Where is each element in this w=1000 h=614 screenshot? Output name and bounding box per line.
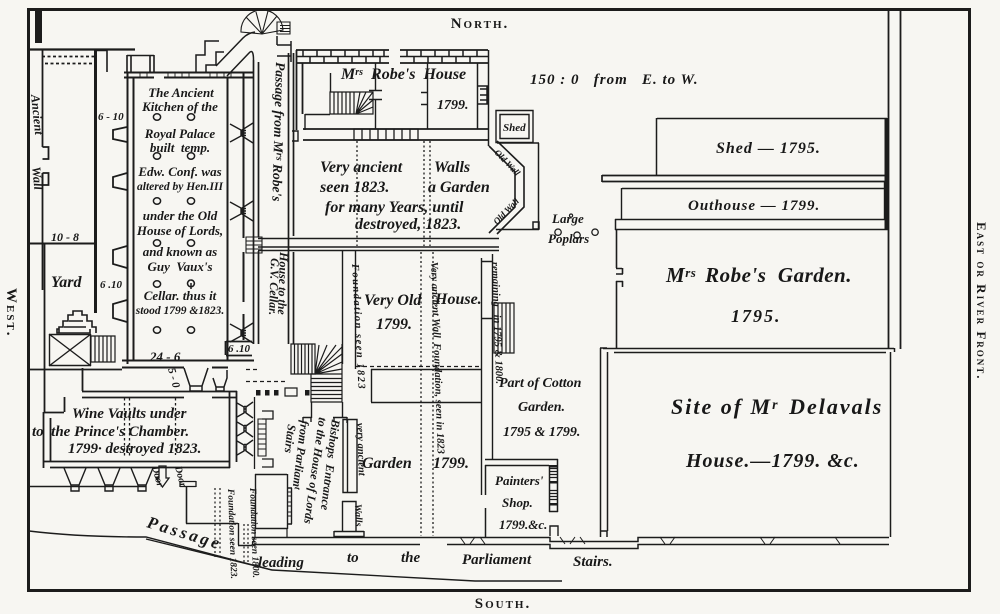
svg-text:seen 1823.: seen 1823. [319, 179, 389, 196]
svg-text:Wall: Wall [29, 166, 45, 191]
svg-text:1799.: 1799. [433, 455, 469, 472]
svg-text:Yard: Yard [51, 274, 83, 291]
svg-text:Edw. Conf. was: Edw. Conf. was [137, 164, 221, 179]
svg-text:leading: leading [258, 555, 304, 571]
svg-text:under the Old: under the Old [143, 208, 218, 223]
svg-text:Painters': Painters' [495, 473, 544, 488]
svg-text:Garden: Garden [362, 455, 412, 472]
svg-text:West.: West. [3, 288, 19, 338]
svg-text:6 - 10: 6 - 10 [98, 111, 124, 123]
svg-text:Shed — 1795.: Shed — 1795. [716, 140, 821, 157]
svg-text:Garden.: Garden. [518, 400, 565, 415]
svg-text:North.: North. [451, 16, 510, 32]
svg-text:1799.: 1799. [437, 98, 469, 113]
svg-text:Kitchen of the: Kitchen of the [141, 99, 218, 114]
svg-text:150 : 0 from E. to W.: 150 : 0 from E. to W. [530, 72, 699, 88]
svg-text:House.—1799. &c.: House.—1799. &c. [685, 450, 860, 472]
svg-text:24 - 6: 24 - 6 [149, 349, 181, 364]
svg-text:The Ancient: The Ancient [148, 85, 214, 100]
svg-text:stood 1799 &1823.: stood 1799 &1823. [135, 305, 225, 317]
svg-text:Walls: Walls [352, 504, 364, 527]
svg-text:Outhouse — 1799.: Outhouse — 1799. [688, 198, 820, 214]
svg-text:House of Lords,: House of Lords, [136, 223, 223, 238]
svg-text:6 .10: 6 .10 [228, 343, 251, 355]
svg-text:1795 & 1799.: 1795 & 1799. [503, 425, 580, 440]
svg-text:Walls: Walls [434, 159, 470, 176]
svg-text:East or River Front.: East or River Front. [974, 222, 989, 381]
svg-text:a Garden: a Garden [428, 179, 490, 196]
svg-text:Cellar. thus it: Cellar. thus it [144, 288, 217, 303]
svg-text:Part of Cotton: Part of Cotton [499, 376, 582, 391]
svg-text:Guy Vaux's: Guy Vaux's [147, 259, 212, 274]
svg-text:1799.: 1799. [376, 316, 412, 333]
svg-text:Royal Palace: Royal Palace [144, 126, 216, 141]
svg-text:Large: Large [551, 211, 584, 226]
svg-text:Very ancient: Very ancient [320, 159, 403, 176]
svg-text:10 - 8: 10 - 8 [51, 230, 79, 244]
svg-text:for many Years, until: for many Years, until [325, 199, 464, 216]
svg-text:Very Old: Very Old [364, 292, 422, 309]
svg-text:altered by Hen.III: altered by Hen.III [137, 181, 223, 193]
svg-text:1799.&c.: 1799.&c. [499, 517, 547, 532]
svg-text:destroyed, 1823.: destroyed, 1823. [355, 216, 461, 233]
svg-text:and known as: and known as [143, 244, 217, 259]
svg-text:G.V. Cellar.: G.V. Cellar. [266, 258, 282, 316]
svg-text:Shop.: Shop. [502, 495, 533, 510]
svg-text:6 .10: 6 .10 [100, 279, 123, 291]
svg-text:the: the [401, 550, 421, 566]
svg-text:Poplars: Poplars [548, 231, 589, 246]
svg-text:to: to [347, 550, 359, 566]
svg-text:South.: South. [475, 596, 532, 612]
svg-text:Stairs.: Stairs. [573, 554, 613, 570]
svg-text:1795.: 1795. [731, 306, 782, 326]
svg-text:Parliament: Parliament [462, 552, 532, 568]
svg-text:1799· destroyed 1823.: 1799· destroyed 1823. [68, 441, 201, 457]
svg-text:Shed: Shed [503, 122, 526, 134]
svg-text:to the Prince's Chamber.: to the Prince's Chamber. [32, 424, 189, 440]
